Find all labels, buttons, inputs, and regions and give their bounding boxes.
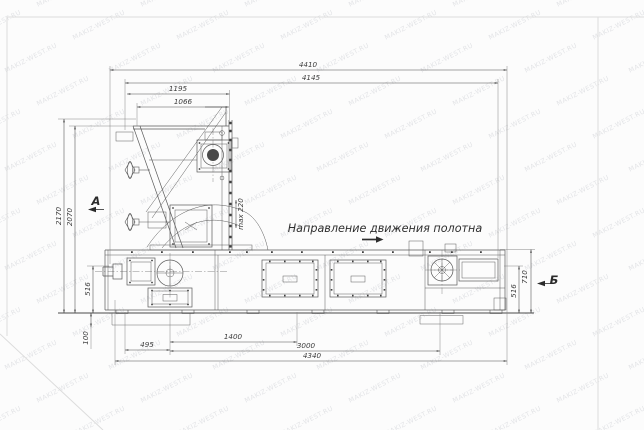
dim-495: 495 [140,340,154,349]
technical-drawing: 4410 4145 1195 1066 2170 2070 516 100 49… [0,0,644,430]
label-max-220: max 220 [236,198,245,230]
view-a-label: А [91,194,101,208]
dim-2070: 2070 [65,207,74,226]
dim-100: 100 [81,331,90,345]
view-b-label: Б [550,273,559,287]
view-a-arrow-icon [88,207,104,212]
dimension-labels: 4410 4145 1195 1066 2170 2070 516 100 49… [54,60,529,360]
extension-lines [58,66,535,365]
dim-4410: 4410 [299,60,318,69]
dim-516-left: 516 [83,282,92,296]
dim-4145: 4145 [302,73,321,82]
dimension-lines [64,70,531,361]
dim-1400: 1400 [224,332,243,341]
dim-710: 710 [520,270,529,284]
direction-arrow-icon [362,236,384,242]
dim-516-right: 516 [509,284,518,298]
machine-outline [103,107,506,325]
dim-2170: 2170 [54,206,63,225]
dim-1066: 1066 [174,97,193,106]
dim-3000: 3000 [297,341,316,350]
direction-label: Направление движения полотна [288,222,483,235]
dim-1195: 1195 [169,84,188,93]
dim-4340: 4340 [303,351,322,360]
